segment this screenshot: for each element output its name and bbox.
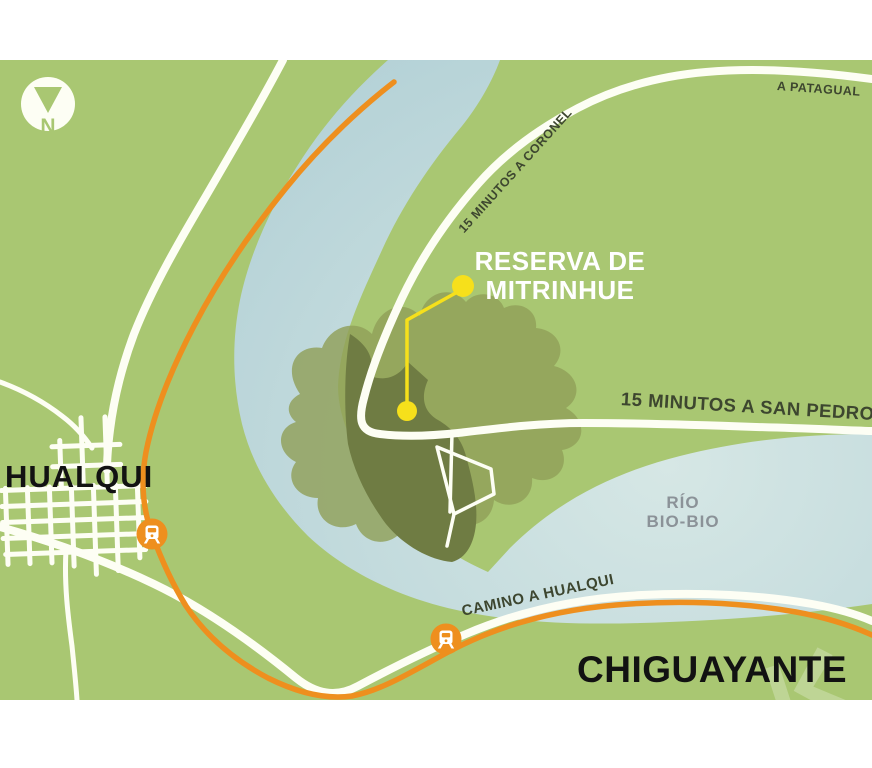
label-rio-bio-bio: RÍO BIO-BIO: [618, 493, 748, 531]
label-reserva-line2: MITRINHUE: [455, 276, 665, 305]
label-rio-line1: RÍO: [618, 493, 748, 512]
label-reserva-line1: RESERVA DE: [455, 247, 665, 276]
map-canvas: N A PATAGUAL 15 MINUTOS A CORONEL RESERV…: [0, 0, 872, 768]
label-rio-line2: BIO-BIO: [618, 512, 748, 531]
compass-letter: N: [40, 115, 55, 138]
train-station-icon: [137, 519, 168, 550]
train-station-icon: [431, 624, 462, 655]
label-reserva-de-mitrinhue: RESERVA DE MITRINHUE: [455, 247, 665, 305]
label-chiguayante: CHIGUAYANTE: [577, 649, 847, 691]
reserve-marker-dot: [397, 401, 417, 421]
label-hualqui: HUALQUI: [5, 459, 153, 495]
